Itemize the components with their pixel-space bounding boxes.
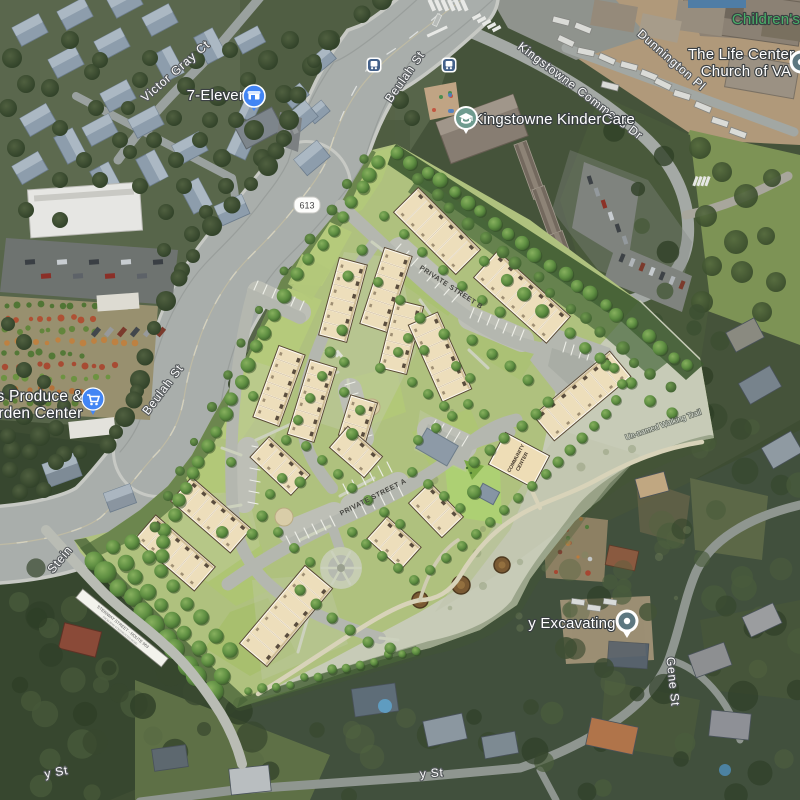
svg-text:y St: y St <box>419 765 444 781</box>
svg-text:7-Eleven: 7-Eleven <box>187 87 248 104</box>
svg-text:Children's: Children's <box>732 11 800 28</box>
svg-text:y Excavating: y Excavating <box>528 615 615 632</box>
svg-text:613: 613 <box>299 200 314 210</box>
svg-text:ls Produce &: ls Produce & <box>0 388 84 405</box>
svg-text:Kingstowne KinderCare: Kingstowne KinderCare <box>473 111 635 128</box>
svg-text:The Life Center: The Life Center <box>688 46 794 63</box>
svg-text:Church of VA: Church of VA <box>701 63 792 80</box>
svg-text:arden Center: arden Center <box>0 405 82 422</box>
